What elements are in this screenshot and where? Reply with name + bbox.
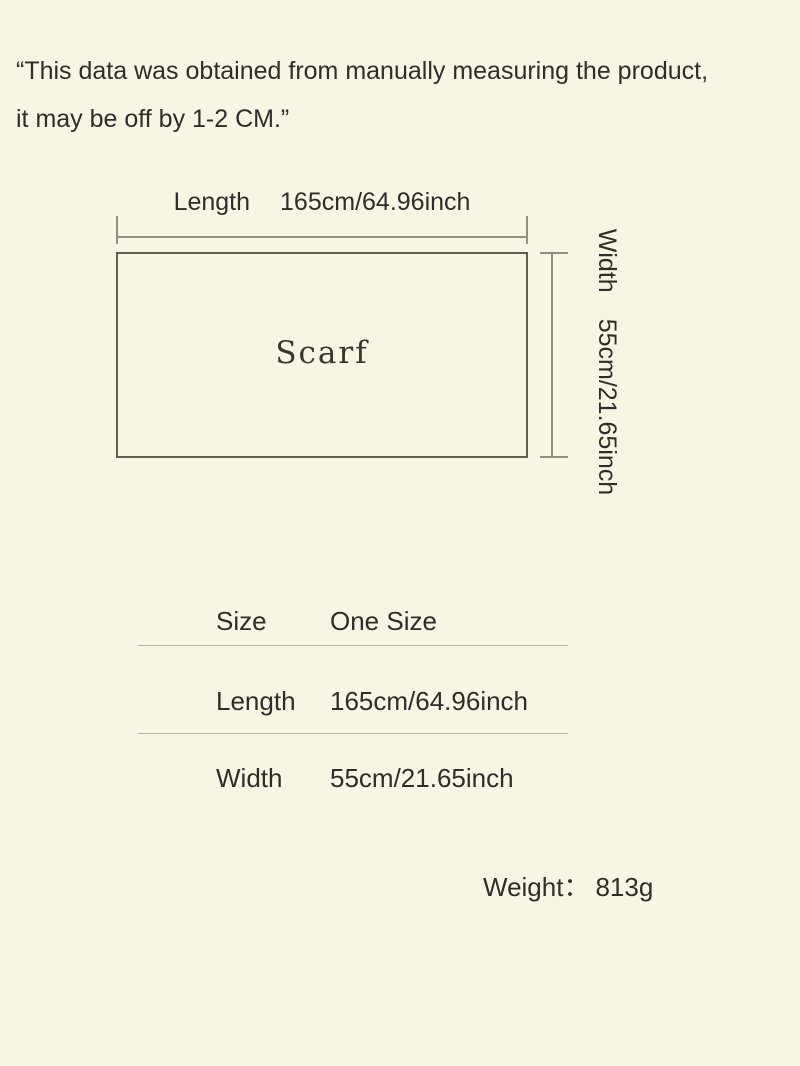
disclaimer-line-2: it may be off by 1-2 CM.” — [16, 95, 796, 143]
width-dimension-label: Width55cm/21.65inch — [592, 212, 622, 512]
length-row-value: 165cm/64.96inch — [330, 683, 528, 719]
scarf-outline-rectangle: Scarf — [116, 252, 528, 458]
disclaimer-line-1: “This data was obtained from manually me… — [16, 47, 796, 95]
length-dimension-tick-right — [526, 216, 528, 244]
size-table-divider-1 — [138, 645, 568, 646]
width-dimension-line — [551, 253, 553, 457]
size-row-value: One Size — [330, 603, 437, 639]
size-table-divider-2 — [138, 733, 568, 734]
length-row-label: Length — [216, 683, 330, 719]
length-dimension-label: Length165cm/64.96inch — [116, 188, 528, 217]
size-table-row-size: Size One Size — [138, 603, 568, 639]
length-dimension-line — [117, 236, 527, 238]
measurement-disclaimer: “This data was obtained from manually me… — [16, 47, 796, 143]
size-row-label: Size — [216, 603, 330, 639]
width-row-value: 55cm/21.65inch — [330, 760, 514, 796]
product-name-label: Scarf — [275, 335, 368, 371]
weight-label: Weight： — [483, 872, 589, 902]
weight-value: 813g — [595, 872, 653, 902]
width-value-text: 55cm/21.65inch — [593, 319, 622, 496]
length-value-text: 165cm/64.96inch — [280, 188, 470, 216]
size-table-row-width: Width 55cm/21.65inch — [138, 760, 568, 796]
length-dimension-tick-left — [116, 216, 118, 244]
width-label-text: Width — [593, 229, 622, 293]
weight-info: Weight：813g — [483, 872, 653, 902]
width-row-label: Width — [216, 760, 330, 796]
width-dimension-cap-bottom — [540, 456, 568, 458]
size-table-row-length: Length 165cm/64.96inch — [138, 683, 568, 719]
width-dimension-cap-top — [540, 252, 568, 254]
length-label-text: Length — [174, 188, 250, 216]
